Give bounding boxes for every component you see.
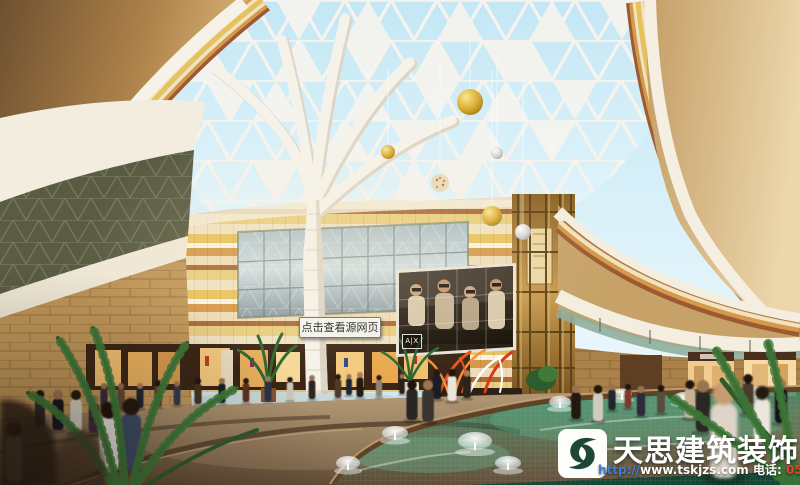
mall-atrium-rendering: A|X 点击查看源网页 天思建筑装饰 http://www.tskjzs.com… xyxy=(0,0,800,485)
vignette xyxy=(0,260,340,485)
screen-brand-logo: A|X xyxy=(402,334,422,349)
source-page-tooltip[interactable]: 点击查看源网页 xyxy=(299,317,381,338)
scene-canvas xyxy=(0,0,800,485)
